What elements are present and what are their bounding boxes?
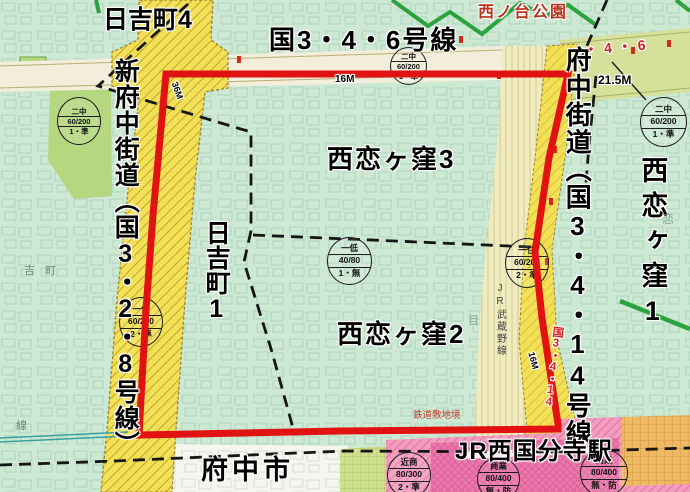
zoning-ratio: 60/200 xyxy=(58,116,100,126)
zoning-use: 一住 xyxy=(120,304,162,315)
city-planning-map: 二中 60/200 1・準 二中 60/200 1・準 二中 60/200 1・… xyxy=(0,0,690,492)
zoning-circle-right-road: 一住 60/200 2・準 xyxy=(505,238,549,288)
zoning-use: 近商 xyxy=(388,457,430,468)
zoning-use: 二中 xyxy=(391,52,426,61)
zoning-use: 二中 xyxy=(58,107,100,116)
zoning-ratio: 60/200 xyxy=(641,115,686,127)
zoning-circle-right-band: 二中 60/200 1・準 xyxy=(640,97,687,147)
zoning-ratio: 80/400 xyxy=(478,472,519,484)
zoning-ratio: 80/400 xyxy=(581,466,627,478)
zoning-circle-shogyo-2: 商業 80/400 無・防 xyxy=(580,449,628,492)
zoning-use: 一住 xyxy=(506,245,548,256)
zoning-height: 2・準 xyxy=(120,328,162,340)
zoning-height: 2・準 xyxy=(388,481,430,492)
zoning-height: 1・準 xyxy=(391,71,426,81)
fuchu-city-texture xyxy=(163,444,348,492)
zoning-height: 1・準 xyxy=(58,126,100,136)
zoning-circle-shogyo-1: 商業 80/400 無・防 xyxy=(477,457,520,492)
zoning-use: 一低 xyxy=(328,243,371,254)
zoning-ratio: 60/200 xyxy=(120,315,162,327)
zoning-circle-center: 一低 40/80 1・無 xyxy=(327,237,372,285)
zoning-height: 1・準 xyxy=(641,128,686,140)
zoning-height: 1・無 xyxy=(328,267,371,279)
zoning-use: 商業 xyxy=(581,455,627,466)
zoning-height: 2・準 xyxy=(506,269,548,281)
zoning-height: 無・防 xyxy=(478,485,519,492)
zoning-circle-kinsho: 近商 80/300 2・準 xyxy=(387,452,431,492)
zoning-use: 二中 xyxy=(641,104,686,115)
band-21-5m xyxy=(560,28,690,104)
zoning-ratio: 40/80 xyxy=(328,254,371,266)
zoning-ratio: 60/200 xyxy=(506,256,548,268)
zoning-circle-park: 二中 60/200 1・準 xyxy=(57,97,101,145)
zoning-height: 無・防 xyxy=(581,479,627,491)
zoning-use: 商業 xyxy=(478,461,519,472)
zoning-ratio: 80/300 xyxy=(388,468,430,480)
zoning-circle-top-road: 二中 60/200 1・準 xyxy=(390,47,427,85)
zoning-circle-left-road: 一住 60/200 2・準 xyxy=(119,297,163,347)
lowrise-block-grid xyxy=(340,446,388,492)
zoning-ratio: 60/200 xyxy=(391,61,426,71)
